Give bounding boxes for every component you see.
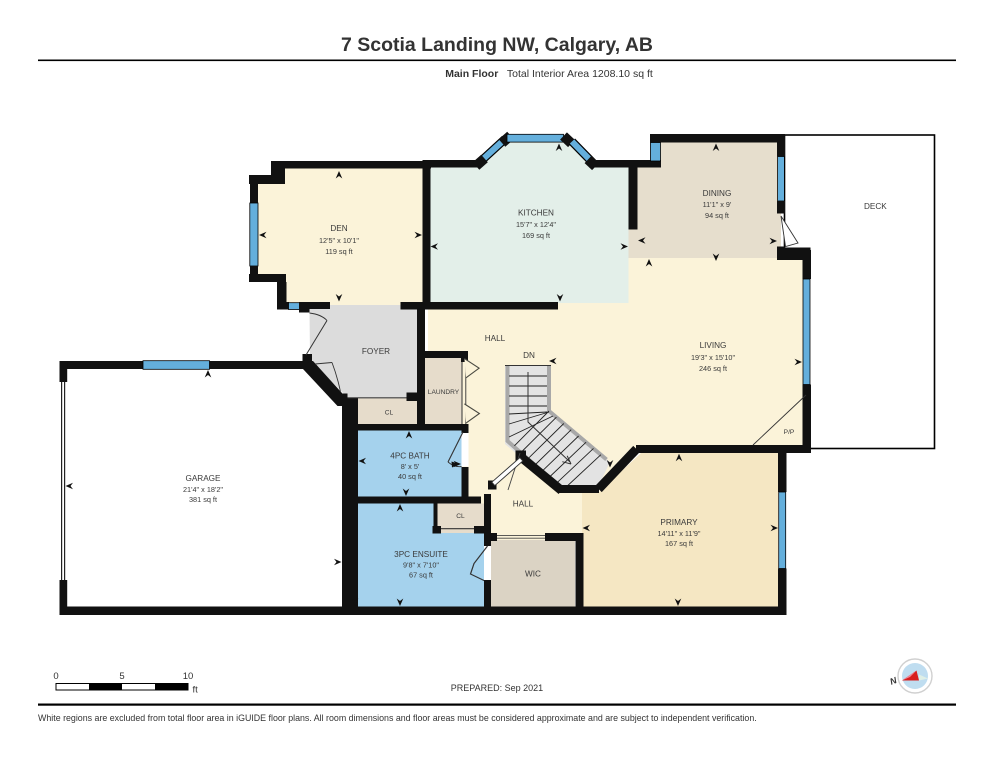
svg-text:3PC ENSUITE: 3PC ENSUITE bbox=[394, 550, 448, 559]
svg-text:DN: DN bbox=[523, 351, 535, 360]
svg-text:67 sq ft: 67 sq ft bbox=[409, 571, 433, 580]
svg-text:5: 5 bbox=[119, 671, 124, 682]
svg-text:169 sq ft: 169 sq ft bbox=[522, 231, 550, 240]
svg-text:DECK: DECK bbox=[864, 202, 887, 211]
svg-text:LIVING: LIVING bbox=[700, 341, 727, 350]
svg-text:4PC BATH: 4PC BATH bbox=[390, 452, 430, 461]
svg-text:ft: ft bbox=[193, 685, 199, 696]
svg-text:PRIMARY: PRIMARY bbox=[660, 518, 698, 527]
svg-text:9'8" x 7'10": 9'8" x 7'10" bbox=[403, 561, 439, 570]
svg-text:21'4" x 18'2": 21'4" x 18'2" bbox=[183, 485, 223, 494]
svg-text:KITCHEN: KITCHEN bbox=[518, 209, 554, 218]
svg-text:P/P: P/P bbox=[784, 429, 795, 436]
svg-text:10: 10 bbox=[183, 671, 194, 682]
svg-text:8' x 5': 8' x 5' bbox=[401, 462, 420, 471]
svg-text:15'7" x 12'4": 15'7" x 12'4" bbox=[516, 220, 556, 229]
svg-text:11'1" x 9': 11'1" x 9' bbox=[703, 200, 732, 209]
svg-text:HALL: HALL bbox=[485, 334, 506, 343]
svg-text:FOYER: FOYER bbox=[362, 347, 390, 356]
svg-text:CL: CL bbox=[385, 410, 394, 417]
svg-text:94 sq ft: 94 sq ft bbox=[705, 211, 729, 220]
svg-text:Main Floor Total Interior Ar: Main Floor Total Interior Area 1208.10 s… bbox=[445, 68, 653, 80]
svg-text:119 sq ft: 119 sq ft bbox=[325, 247, 352, 256]
svg-text:White regions are excluded fro: White regions are excluded from total fl… bbox=[38, 713, 757, 723]
svg-text:LAUNDRY: LAUNDRY bbox=[428, 389, 460, 396]
svg-text:246 sq ft: 246 sq ft bbox=[699, 364, 727, 373]
svg-text:167 sq ft: 167 sq ft bbox=[665, 539, 693, 548]
svg-text:381 sq ft: 381 sq ft bbox=[189, 495, 217, 504]
svg-text:WIC: WIC bbox=[525, 570, 541, 579]
svg-text:PREPARED: Sep 2021: PREPARED: Sep 2021 bbox=[451, 683, 543, 693]
svg-text:DINING: DINING bbox=[703, 189, 732, 198]
svg-text:7 Scotia Landing NW, Calgary,: 7 Scotia Landing NW, Calgary, AB bbox=[341, 34, 653, 56]
svg-text:0: 0 bbox=[53, 671, 58, 682]
svg-text:GARAGE: GARAGE bbox=[185, 474, 221, 483]
svg-text:HALL: HALL bbox=[513, 500, 534, 509]
svg-text:DEN: DEN bbox=[330, 224, 347, 233]
svg-text:14'11" x 11'9": 14'11" x 11'9" bbox=[658, 529, 701, 538]
svg-text:19'3" x 15'10": 19'3" x 15'10" bbox=[691, 353, 735, 362]
svg-text:12'5" x 10'1": 12'5" x 10'1" bbox=[319, 236, 359, 245]
svg-text:40 sq ft: 40 sq ft bbox=[398, 472, 422, 481]
svg-text:CL: CL bbox=[456, 513, 465, 520]
